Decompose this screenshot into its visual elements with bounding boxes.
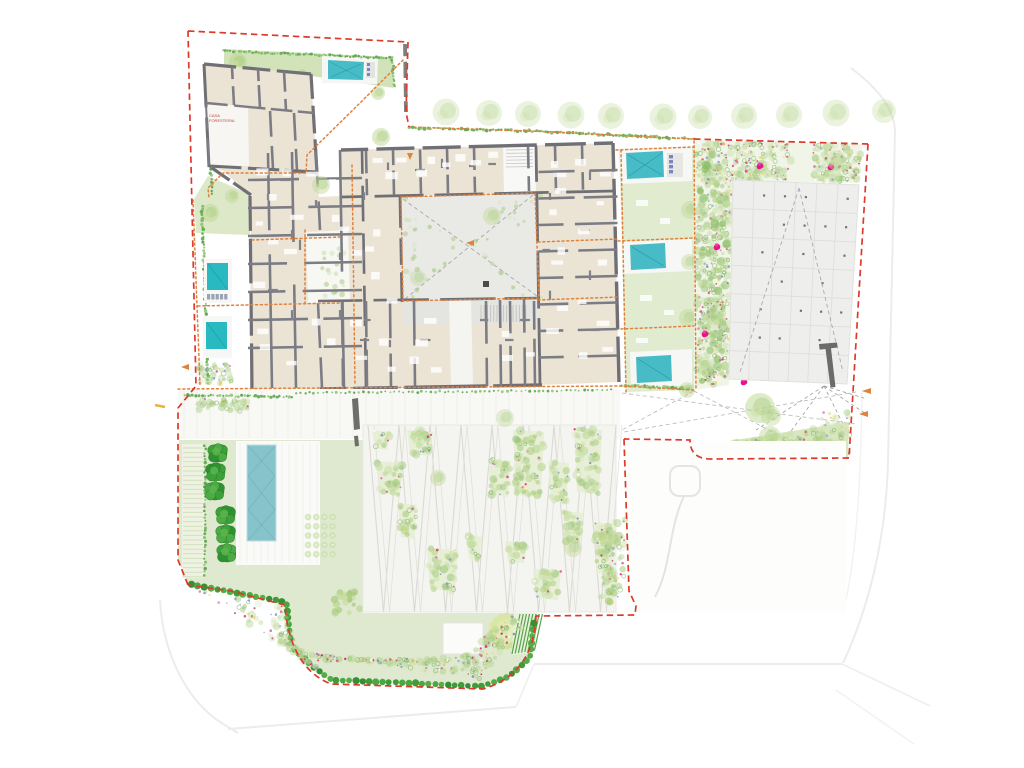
- svg-text:FORESTERIA: FORESTERIA: [209, 118, 235, 123]
